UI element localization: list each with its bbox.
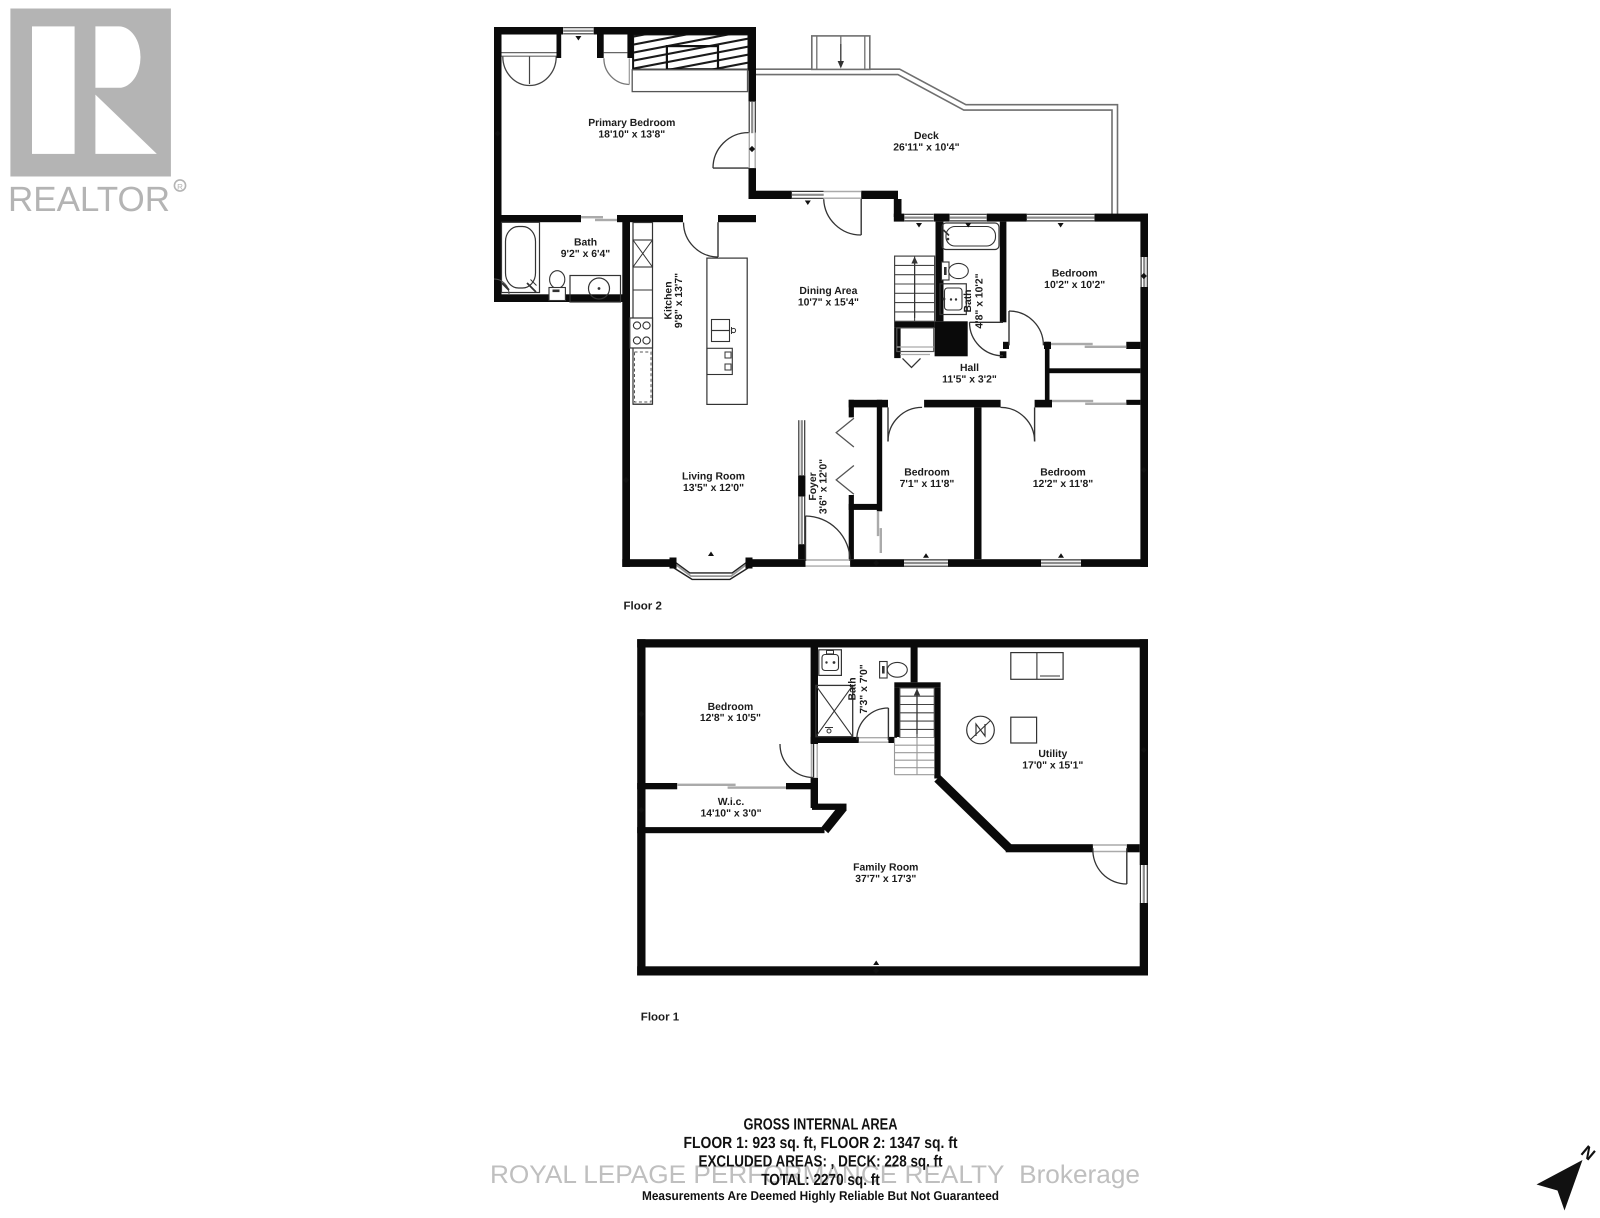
svg-text:18'10" x 13'8": 18'10" x 13'8" <box>598 129 665 140</box>
svg-text:Deck: Deck <box>914 131 939 142</box>
svg-text:7'1" x 11'8": 7'1" x 11'8" <box>900 479 955 490</box>
svg-text:Utility: Utility <box>1038 749 1067 760</box>
svg-text:13'5" x 12'0": 13'5" x 12'0" <box>683 483 744 494</box>
svg-text:Hall: Hall <box>960 363 979 374</box>
svg-text:37'7" x 17'3": 37'7" x 17'3" <box>855 874 916 885</box>
svg-text:Bedroom: Bedroom <box>708 702 754 713</box>
svg-text:TOTAL: 2270 sq. ft: TOTAL: 2270 sq. ft <box>761 1171 880 1189</box>
svg-text:Living Room: Living Room <box>682 471 745 482</box>
svg-text:7'3" x 7'0": 7'3" x 7'0" <box>859 664 870 714</box>
svg-text:Bath: Bath <box>963 289 974 312</box>
svg-text:10'2" x 10'2": 10'2" x 10'2" <box>1044 280 1105 291</box>
svg-text:11'5" x 3'2": 11'5" x 3'2" <box>942 375 997 386</box>
svg-text:14'10" x 3'0": 14'10" x 3'0" <box>700 808 761 819</box>
svg-text:Bedroom: Bedroom <box>1052 268 1098 279</box>
svg-text:10'7" x 15'4": 10'7" x 15'4" <box>798 297 859 308</box>
svg-text:9'2" x 6'4": 9'2" x 6'4" <box>561 249 611 260</box>
svg-text:REALTOR: REALTOR <box>8 180 170 219</box>
svg-text:Bath: Bath <box>574 237 597 248</box>
svg-text:12'2" x 11'8": 12'2" x 11'8" <box>1033 479 1094 490</box>
svg-text:4'8" x 10'2": 4'8" x 10'2" <box>974 273 985 328</box>
svg-text:Family Room: Family Room <box>853 862 918 873</box>
svg-text:W.i.c.: W.i.c. <box>718 797 745 808</box>
svg-text:R: R <box>177 183 183 192</box>
svg-text:GROSS INTERNAL AREA: GROSS INTERNAL AREA <box>744 1115 898 1133</box>
svg-text:Bedroom: Bedroom <box>1040 467 1086 478</box>
svg-text:9'8" x 13'7": 9'8" x 13'7" <box>674 273 685 328</box>
svg-text:Floor 1: Floor 1 <box>641 1012 680 1024</box>
svg-text:17'0" x 15'1": 17'0" x 15'1" <box>1022 760 1083 771</box>
svg-text:Primary Bedroom: Primary Bedroom <box>588 118 675 129</box>
svg-text:12'8" x 10'5": 12'8" x 10'5" <box>700 713 761 724</box>
svg-text:26'11" x 10'4": 26'11" x 10'4" <box>893 143 959 154</box>
svg-text:Measurements Are Deemed Highly: Measurements Are Deemed Highly Reliable … <box>642 1188 999 1203</box>
svg-text:Floor 2: Floor 2 <box>624 601 662 613</box>
svg-text:Dining Area: Dining Area <box>799 286 857 297</box>
svg-text:Bath: Bath <box>847 677 858 700</box>
svg-text:Bedroom: Bedroom <box>904 467 950 478</box>
svg-text:FLOOR 1: 923 sq. ft, FLOOR 2:: FLOOR 1: 923 sq. ft, FLOOR 2: 1347 sq. f… <box>684 1134 959 1152</box>
svg-text:Kitchen: Kitchen <box>663 281 674 319</box>
svg-text:3'6" x 12'0": 3'6" x 12'0" <box>819 459 830 514</box>
svg-text:EXCLUDED AREAS: , DECK: 228 sq: EXCLUDED AREAS: , DECK: 228 sq. ft <box>699 1153 943 1171</box>
svg-text:Foyer: Foyer <box>808 472 819 500</box>
